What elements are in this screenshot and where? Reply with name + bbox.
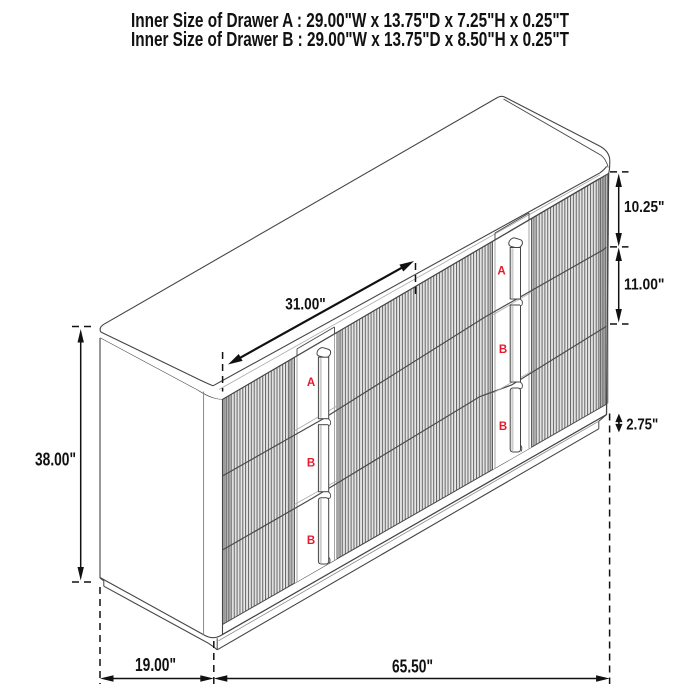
- svg-text:A: A: [307, 377, 315, 389]
- svg-text:31.00": 31.00": [285, 295, 326, 314]
- svg-text:65.50": 65.50": [392, 657, 433, 677]
- svg-text:11.00": 11.00": [624, 277, 665, 294]
- svg-text:A: A: [497, 266, 505, 278]
- svg-text:Inner Size of Drawer B : 29.00: Inner Size of Drawer B : 29.00"W x 13.75…: [131, 29, 569, 51]
- svg-text:B: B: [499, 421, 507, 433]
- svg-text:38.00": 38.00": [35, 449, 76, 469]
- svg-text:10.25": 10.25": [624, 199, 665, 216]
- svg-text:2.75": 2.75": [626, 417, 658, 434]
- svg-text:B: B: [499, 344, 507, 356]
- svg-text:B: B: [307, 458, 315, 470]
- svg-text:B: B: [307, 535, 315, 547]
- svg-text:19.00": 19.00": [135, 655, 176, 675]
